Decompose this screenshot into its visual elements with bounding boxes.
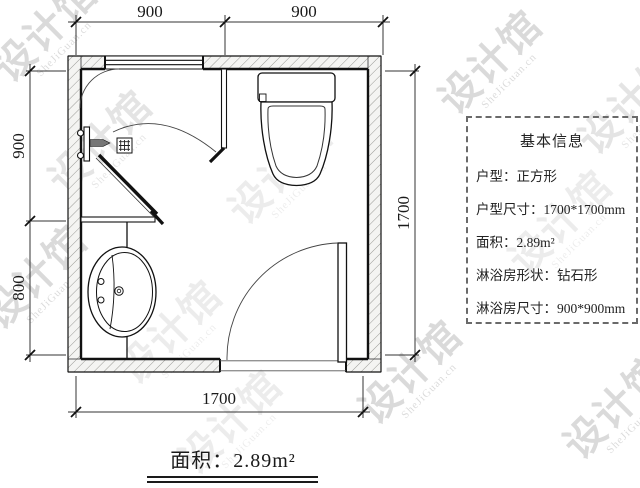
toilet-flush-button xyxy=(260,94,267,102)
dimension-bottom: 1700 xyxy=(68,376,370,418)
door-leaf xyxy=(338,243,347,362)
info-row-shower-shape: 淋浴房形状：钻石形 xyxy=(476,264,628,284)
shower-glass-return xyxy=(210,148,224,162)
shower-enclosure xyxy=(78,69,227,224)
dim-label-top-left: 900 xyxy=(137,2,163,21)
dimension-left: 900 800 xyxy=(9,64,66,362)
toilet xyxy=(258,73,335,186)
dim-label-left-top: 900 xyxy=(9,133,28,159)
info-row-layout-size: 户型尺寸：1700*1700mm xyxy=(476,198,628,218)
info-row-shower-size: 淋浴房尺寸：900*900mm xyxy=(476,297,628,317)
dim-label-left-bottom: 800 xyxy=(9,275,28,301)
dimension-right: 1700 xyxy=(385,64,420,362)
shower-faucet-icon xyxy=(78,127,111,161)
door-swing-arc xyxy=(227,243,338,360)
door-threshold xyxy=(220,361,346,371)
sink xyxy=(88,247,156,337)
entry-door xyxy=(220,243,347,371)
floor-drain-icon xyxy=(117,138,132,153)
shower-corner-arc xyxy=(80,69,119,108)
floorplan-page: 设计馆SheJiGuan.cn 设计馆SheJiGuan.cn 设计馆SheJi… xyxy=(0,0,640,488)
shower-glass-panel-vertical xyxy=(222,69,227,148)
dim-label-bottom: 1700 xyxy=(202,389,236,408)
toilet-tank xyxy=(258,73,335,102)
shower-door-edge xyxy=(96,158,154,217)
toilet-bowl-inner xyxy=(268,106,325,178)
info-box-title: 基本信息 xyxy=(476,130,628,151)
shower-glass-panel-bottom xyxy=(81,217,155,222)
dim-label-top-right: 900 xyxy=(291,2,317,21)
dim-label-right: 1700 xyxy=(394,196,413,230)
area-label: 面积：2.89m² xyxy=(147,444,319,473)
area-label-underline xyxy=(147,476,318,483)
dimension-top: 900 900 xyxy=(68,2,390,55)
basic-info-box: 基本信息 户型：正方形 户型尺寸：1700*1700mm 面积：2.89m² 淋… xyxy=(466,116,638,324)
info-row-area: 面积：2.89m² xyxy=(476,231,628,251)
shower-door-leaf xyxy=(99,155,157,214)
window xyxy=(105,56,203,69)
info-row-layout: 户型：正方形 xyxy=(476,165,628,185)
